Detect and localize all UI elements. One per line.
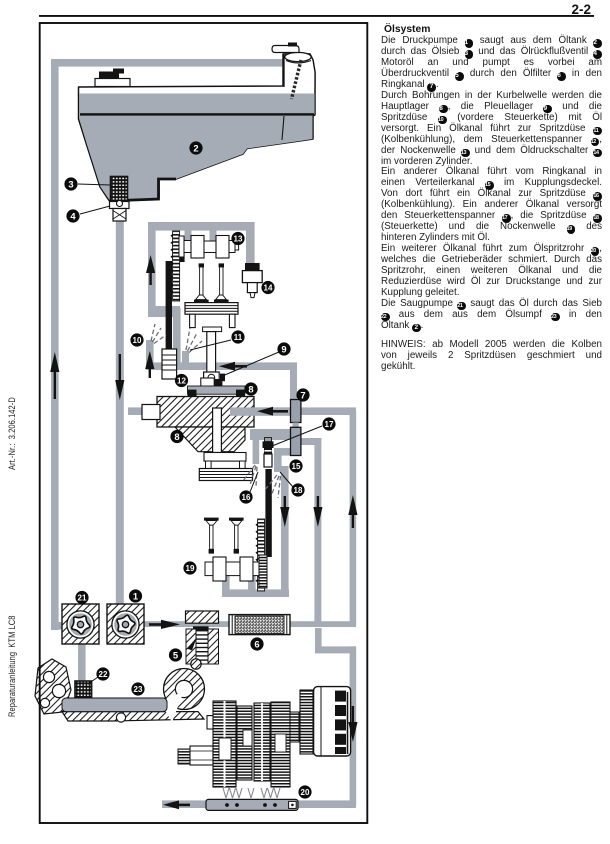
svg-text:23: 23 [134,685,143,694]
svg-text:14: 14 [264,284,273,293]
svg-text:16: 16 [242,493,251,502]
svg-text:1: 1 [133,590,138,601]
svg-text:18: 18 [294,486,303,495]
svg-text:10: 10 [133,336,142,345]
svg-text:22: 22 [99,670,108,679]
svg-text:17: 17 [325,420,334,429]
svg-text:11: 11 [234,333,243,342]
svg-text:7: 7 [300,389,305,400]
svg-text:9: 9 [281,343,286,354]
svg-text:8: 8 [174,431,179,442]
svg-text:13: 13 [234,235,243,244]
svg-text:21: 21 [78,594,87,603]
svg-text:6: 6 [254,638,259,649]
svg-text:8: 8 [248,383,253,394]
svg-text:2: 2 [193,142,198,153]
svg-text:19: 19 [186,564,195,573]
svg-text:3: 3 [68,178,73,189]
svg-text:15: 15 [292,462,301,471]
svg-text:12: 12 [177,377,186,386]
svg-text:5: 5 [173,649,178,660]
svg-text:4: 4 [70,210,76,221]
svg-text:20: 20 [301,788,310,797]
